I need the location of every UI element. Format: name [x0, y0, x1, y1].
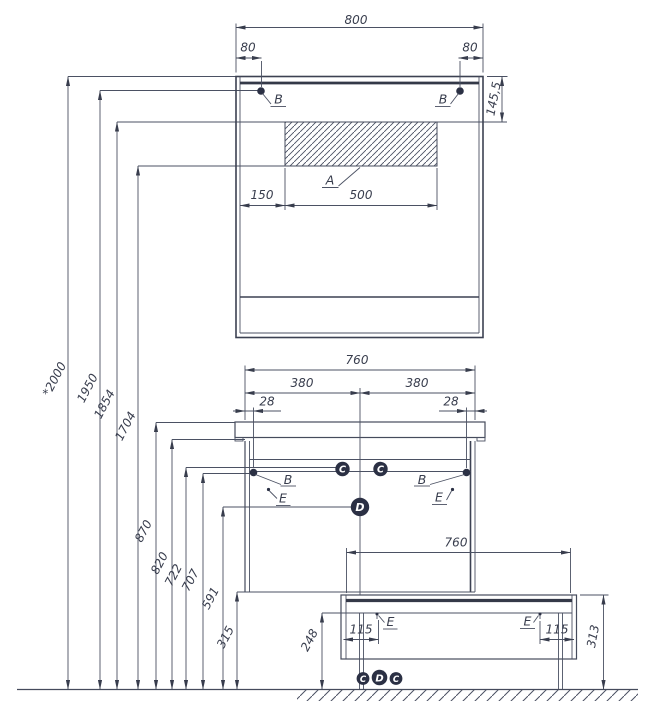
- installation-drawing: *2000 1950 1854 1704 870 820 722 707 591…: [0, 0, 653, 728]
- vanity-e-label-right: E: [435, 490, 443, 505]
- mirror-cabinet-body: [236, 77, 483, 338]
- drawing-canvas: *2000 1950 1854 1704 870 820 722 707 591…: [0, 0, 653, 728]
- ground-hatch: [297, 690, 638, 701]
- height-label-248: 248: [298, 626, 321, 653]
- dim-380-right: 380: [406, 376, 429, 390]
- base-e-point-right: [539, 613, 542, 616]
- dim-80-left: 80: [240, 41, 256, 55]
- base-e-label-right: E: [524, 614, 532, 629]
- height-label-870: 870: [132, 517, 155, 544]
- vanity-marker-d-letter: D: [355, 501, 364, 514]
- heater-zone-hatch: [285, 122, 437, 166]
- height-label-1950: 1950: [74, 371, 101, 405]
- dim-313: 313: [584, 624, 602, 649]
- base-e-point-left: [376, 613, 379, 616]
- dim-380-left: 380: [291, 376, 314, 390]
- base-marker-c-left-letter: C: [360, 675, 367, 685]
- dim-800: 800: [345, 13, 368, 27]
- dim-28-left: 28: [259, 395, 275, 409]
- dim-115-right: 115: [546, 623, 569, 637]
- ground: [17, 690, 638, 702]
- dim-80-right: 80: [462, 41, 478, 55]
- mirror-cabinet: B B A: [236, 77, 483, 338]
- dim-base-760: 760: [445, 536, 468, 550]
- vanity-marker-c-right-letter: C: [377, 465, 384, 476]
- mount-point-b-left: [257, 87, 265, 95]
- heater-zone-label: A: [325, 173, 335, 188]
- vanity-mount-label-left: B: [284, 472, 293, 487]
- mount-point-b-right: [456, 87, 464, 95]
- dim-145-5: 145,5: [483, 81, 503, 117]
- height-label-591: 591: [199, 585, 222, 612]
- vanity-marker-c-left-letter: C: [339, 465, 346, 476]
- base-marker-c-right-letter: C: [393, 675, 400, 685]
- base-marker-d-letter: D: [375, 674, 383, 685]
- height-label-2000: *2000: [40, 359, 70, 398]
- mirror-cabinet-dimensions: 800 80 80 145,5 150 500: [236, 13, 508, 210]
- dim-115-left: 115: [350, 623, 373, 637]
- height-label-1704: 1704: [112, 409, 139, 443]
- dim-vanity-760: 760: [346, 353, 369, 367]
- vanity-mount-label-right: B: [418, 472, 427, 487]
- dim-28-right: 28: [443, 395, 459, 409]
- mirror-mount-label-left: B: [274, 92, 283, 107]
- vanity-cabinet: B B C C D E E: [235, 388, 485, 595]
- height-label-315: 315: [214, 624, 237, 651]
- base-unit-dimensions: 760 115 115 313: [344, 536, 609, 690]
- base-e-label-left: E: [387, 614, 395, 629]
- mirror-mount-label-right: B: [439, 92, 448, 107]
- height-label-1854: 1854: [91, 387, 118, 421]
- vanity-e-label-left: E: [279, 491, 287, 506]
- base-unit-body: [341, 595, 577, 659]
- vanity-mount-b-right: [463, 469, 471, 477]
- dim-500: 500: [350, 188, 373, 202]
- dim-150: 150: [251, 188, 274, 202]
- base-unit: E E C D C: [322, 595, 577, 689]
